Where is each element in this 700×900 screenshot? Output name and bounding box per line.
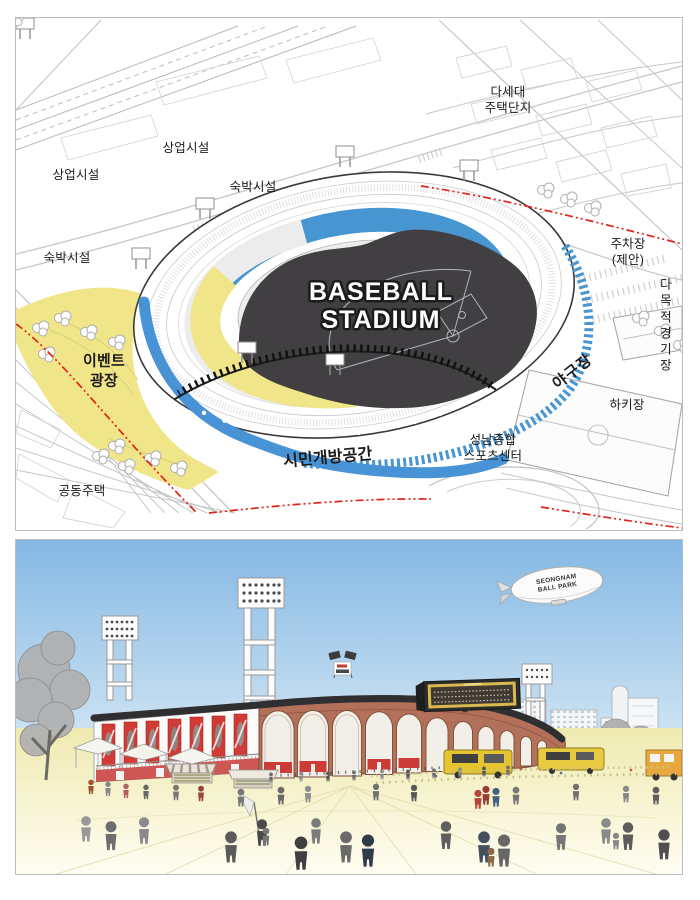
label-parking-proposed: 주차장 (제안)	[610, 236, 645, 269]
label-multi-family-housing: 다세대 주택단지	[485, 84, 532, 117]
site-plan-panel: 다세대 주택단지 상업시설 상업시설 숙박시설 숙박시설 주차장 (제안) 다목…	[15, 17, 683, 531]
label-commercial-left: 상업시설	[53, 167, 100, 183]
rendering-drawing	[16, 540, 682, 874]
label-multipurpose-field: 다목적 경기장	[658, 276, 674, 374]
label-commercial-top: 상업시설	[163, 140, 210, 156]
label-hockey-field: 하키장	[609, 397, 644, 413]
rendering-panel: SEONGNAM BALL PARK	[15, 539, 683, 875]
label-sports-center: 성남종합 스포츠센터	[464, 432, 523, 465]
scoreboard	[416, 678, 521, 714]
label-event-plaza: 이벤트 광장	[83, 352, 125, 391]
stadium-title: BASEBALL STADIUM	[309, 278, 453, 334]
label-lodging-top: 숙박시설	[230, 179, 277, 195]
label-lodging-left: 숙박시설	[44, 250, 91, 266]
page: 다세대 주택단지 상업시설 상업시설 숙박시설 숙박시설 주차장 (제안) 다목…	[0, 0, 700, 900]
label-apartment-housing: 공동주택	[59, 483, 106, 499]
